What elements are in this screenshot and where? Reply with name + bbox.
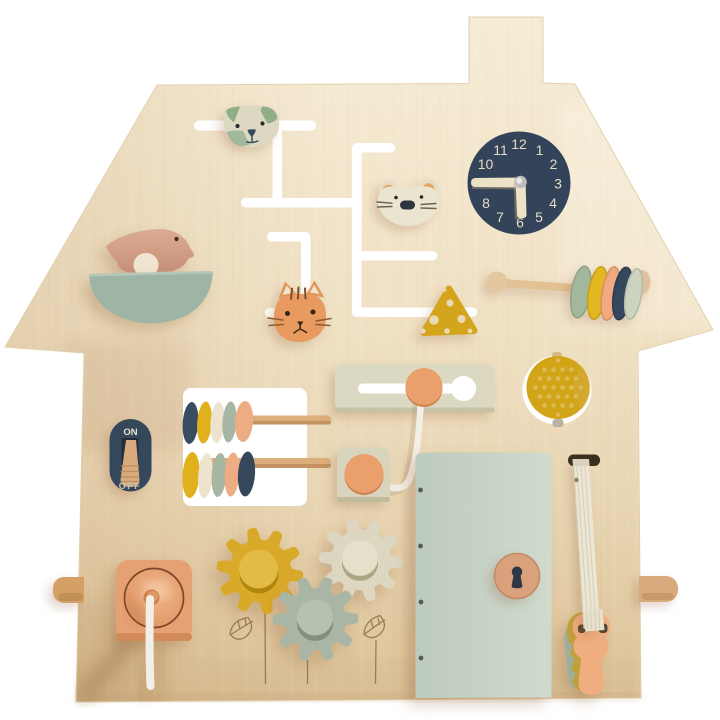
svg-text:5: 5 — [535, 209, 543, 225]
svg-text:1: 1 — [536, 142, 544, 158]
svg-text:2: 2 — [550, 156, 558, 172]
svg-text:3: 3 — [554, 176, 562, 192]
svg-text:ON: ON — [123, 427, 137, 438]
svg-text:7: 7 — [496, 209, 504, 225]
svg-text:11: 11 — [493, 142, 508, 158]
svg-text:8: 8 — [482, 195, 490, 211]
svg-text:12: 12 — [511, 136, 527, 152]
svg-text:OFF: OFF — [119, 481, 142, 491]
svg-text:10: 10 — [478, 156, 494, 172]
svg-text:4: 4 — [549, 195, 557, 211]
